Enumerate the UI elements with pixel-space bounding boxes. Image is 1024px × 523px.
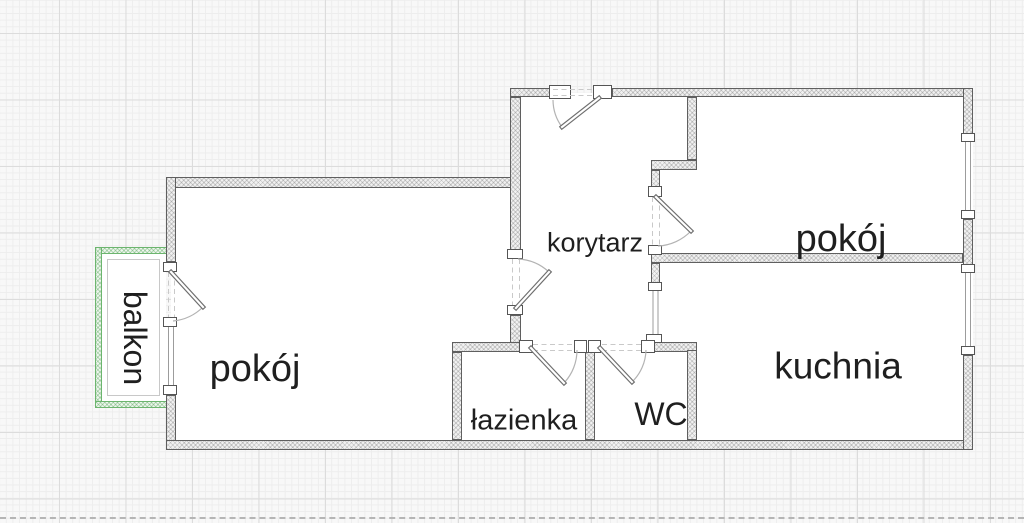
floor-plan-canvas: balkon pokój korytarz pokój kuchnia łazi… [0, 0, 1024, 523]
door-opening-dashes [169, 90, 660, 351]
room-label-pokoj-left: pokój [210, 350, 301, 388]
room-label-kuchnia: kuchnia [774, 348, 902, 385]
room-label-wc: WC [634, 398, 687, 430]
page-boundary-dashed [0, 517, 1024, 519]
room-label-pokoj-right: pokój [796, 220, 887, 258]
room-label-korytarz: korytarz [547, 230, 643, 257]
room-label-lazienka: łazienka [471, 407, 577, 436]
room-label-balkon: balkon [119, 291, 151, 385]
door-swings-layer [0, 0, 1024, 523]
